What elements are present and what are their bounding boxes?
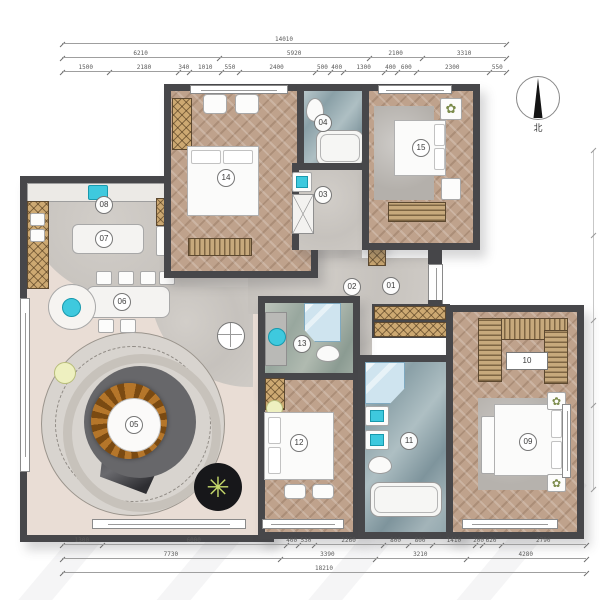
round-table [217, 322, 245, 350]
dimension-segment: 1410 [432, 537, 475, 548]
bathtub-11 [370, 482, 442, 517]
pillow [191, 150, 221, 164]
sink-13 [268, 328, 286, 346]
dimension-segment: 2100 [369, 50, 422, 61]
dimension-segment: 2790 [501, 537, 586, 548]
dimension-value: 2790 [536, 537, 550, 544]
planter-tree-icon: ✳ [194, 463, 242, 511]
pillow [551, 441, 562, 469]
dimension-segment: 14010 [62, 36, 506, 47]
dimension-segment: 800 [408, 537, 433, 548]
dimension-tick [591, 148, 597, 154]
dimension-value: 2260 [341, 537, 355, 544]
dimension-value: 500 [317, 64, 328, 71]
pillow [551, 410, 562, 438]
dimension-segment: 2180 [109, 64, 178, 75]
sink-11a [370, 410, 384, 422]
dimension-segment: 1010 [189, 64, 221, 75]
bar-stool [140, 271, 156, 285]
dimension-value: 400 [385, 64, 396, 71]
bedroom-09-side-window [562, 404, 571, 478]
bar-stool [98, 319, 114, 333]
closet-10-left-wardrobe [478, 318, 502, 382]
label-room-04: 04 [314, 114, 332, 132]
dimension-segment: 2400 [239, 64, 315, 75]
label-room-15: 15 [412, 139, 430, 157]
toilet-13 [316, 345, 340, 362]
label-room-11: 11 [400, 432, 418, 450]
dimension-value: 550 [224, 64, 235, 71]
dimension-value: 2400 [269, 64, 283, 71]
label-room-05: 05 [125, 416, 143, 434]
dimension-value: 620 [486, 537, 497, 544]
dimension-value: 18210 [315, 565, 333, 572]
dimension-segment: 3310 [422, 50, 506, 61]
label-room-02: 02 [343, 278, 361, 296]
dimension-value: 800 [390, 537, 401, 544]
dimension-value: 3390 [320, 551, 334, 558]
bar-sink [62, 298, 81, 317]
dimension-value: 2300 [445, 64, 459, 71]
dimension-value: 4280 [519, 551, 533, 558]
top-dimension-row-detail: 1500218034010105502400500400130040060023… [62, 64, 506, 75]
label-room-01: 01 [382, 277, 400, 295]
table-divider-line [218, 334, 242, 335]
dimension-value: 6210 [133, 50, 147, 57]
dimension-segment: 5920 [219, 50, 369, 61]
lounge-south-window [92, 519, 246, 529]
dimension-value: 400 [286, 537, 297, 544]
bedroom-14-window [190, 85, 288, 94]
label-room-03: 03 [314, 186, 332, 204]
pillow [268, 417, 281, 444]
label-room-06: 06 [113, 293, 131, 311]
shoe-cabinet [374, 322, 450, 337]
dimension-value: 550 [492, 64, 503, 71]
dimension-segment: 1500 [62, 64, 109, 75]
dimension-value: 530 [301, 537, 312, 544]
oven-appliance [30, 213, 45, 226]
dimension-value: 600 [401, 64, 412, 71]
nightstand [235, 94, 259, 114]
bar-stool [118, 271, 134, 285]
plant-box-icon: ✿ [440, 98, 462, 120]
dimension-value: 1010 [198, 64, 212, 71]
dimension-value: 2180 [137, 64, 151, 71]
pillow [434, 124, 445, 146]
dimension-value: 400 [331, 64, 342, 71]
small-plant-icon [54, 362, 76, 384]
label-room-12: 12 [290, 434, 308, 452]
label-room-14: 14 [217, 169, 235, 187]
dimension-value: 3210 [413, 551, 427, 558]
dimension-segment: 2300 [416, 64, 489, 75]
dimension-segment: 6210 [62, 50, 219, 61]
north-compass: 北 [516, 76, 560, 120]
dimension-value: 5920 [287, 50, 301, 57]
right-dimension-line [593, 150, 594, 490]
bottom-dimension-row-detail: 13006000400530226080080014102006202790 [62, 537, 586, 548]
dimension-segment: 1300 [62, 537, 102, 548]
dimension-segment: 3210 [375, 551, 465, 562]
sink-11b [370, 434, 384, 446]
nightstand [203, 94, 227, 114]
dimension-value: 1410 [447, 537, 461, 544]
foot-stool [312, 484, 334, 499]
utility-cabinet [292, 194, 314, 234]
bedroom-14-bench [188, 238, 252, 256]
dimension-tick [591, 318, 597, 324]
pillow [268, 447, 281, 474]
hall-closet-upper [374, 306, 446, 320]
bottom-dimension-row-major: 7730339032104280 [62, 551, 586, 562]
top-dimension-row-overall: 14010 [62, 36, 506, 47]
dimension-segment: 3390 [280, 551, 375, 562]
microwave-appliance [30, 229, 45, 242]
dimension-value: 340 [178, 64, 189, 71]
dimension-value: 2100 [388, 50, 402, 57]
dimension-value: 7730 [164, 551, 178, 558]
label-room-10: 10 [506, 352, 548, 370]
floor-plan-canvas: ✳ ✿ [0, 0, 600, 600]
dimension-value: 14010 [275, 36, 293, 43]
dimension-value: 1300 [75, 537, 89, 544]
label-room-07: 07 [95, 230, 113, 248]
toilet-11 [368, 456, 392, 474]
foot-stool [284, 484, 306, 499]
dimension-segment: 1300 [343, 64, 384, 75]
dimension-value: 6000 [186, 537, 200, 544]
dimension-value: 800 [415, 537, 426, 544]
dimension-segment: 2260 [314, 537, 383, 548]
label-room-09: 09 [519, 433, 537, 451]
dimension-segment: 620 [482, 537, 501, 548]
bedroom-14-wardrobe [172, 98, 192, 150]
compass-north-label: 北 [533, 121, 542, 134]
dimension-tick [591, 233, 597, 239]
bedroom-15-window [378, 85, 452, 94]
washing-machine-drum [296, 176, 308, 188]
pillow [223, 150, 253, 164]
dimension-tick [591, 487, 597, 493]
bottom-dimension-row-overall: 18210 [62, 565, 586, 576]
bedroom-09-window [462, 519, 558, 529]
table-divider-line [230, 323, 231, 347]
dimension-segment: 18210 [62, 565, 586, 576]
bedroom-12-window [262, 519, 344, 529]
dimension-value: 3310 [457, 50, 471, 57]
compass-needle-icon [534, 78, 543, 118]
dimension-segment: 6000 [102, 537, 286, 548]
label-room-13: 13 [293, 335, 311, 353]
dimension-value: 1300 [356, 64, 370, 71]
bathtub-04 [316, 130, 364, 166]
bar-stool [120, 319, 136, 333]
label-room-08: 08 [95, 196, 113, 214]
dimension-value: 1500 [79, 64, 93, 71]
pillow [434, 148, 445, 170]
top-dimension-row-major: 6210592021003310 [62, 50, 506, 61]
bedroom-15-bench [388, 202, 446, 222]
nightstand [441, 178, 461, 200]
bar-stool [96, 271, 112, 285]
lounge-west-window [20, 298, 30, 472]
dimension-segment: 4280 [466, 551, 587, 562]
entry-door-opening [428, 264, 443, 304]
dimension-tick [591, 403, 597, 409]
dimension-segment: 800 [383, 537, 408, 548]
dimension-segment: 7730 [62, 551, 280, 562]
